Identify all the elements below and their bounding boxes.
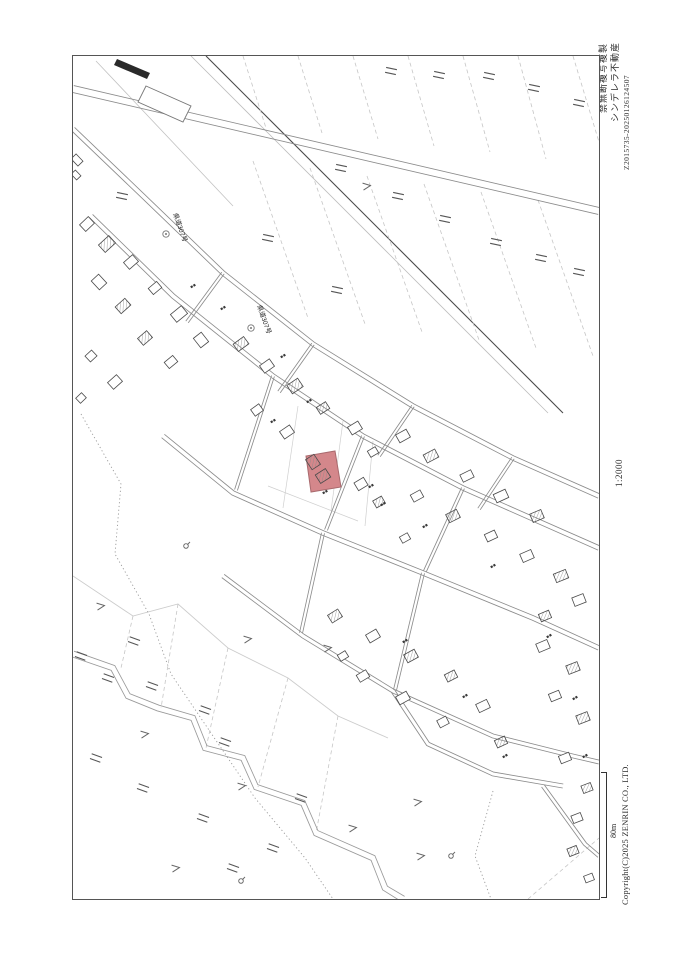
paddy-field-symbol bbox=[267, 844, 279, 852]
symbol-stroke bbox=[574, 268, 585, 270]
building bbox=[410, 490, 423, 502]
paddy-field-symbol bbox=[197, 814, 209, 822]
building bbox=[538, 610, 551, 622]
paddy-field-symbol bbox=[335, 164, 347, 171]
road-edge bbox=[397, 573, 425, 690]
label-glyph bbox=[193, 284, 196, 287]
building bbox=[115, 298, 131, 313]
map-frame: 県道307号 県道307号 bbox=[72, 55, 600, 900]
symbol-stroke bbox=[433, 76, 444, 78]
building bbox=[80, 217, 95, 232]
symbol-stroke bbox=[148, 682, 158, 686]
building bbox=[576, 712, 590, 725]
building-footprint bbox=[148, 281, 162, 294]
road-edge bbox=[222, 578, 599, 764]
paddy-field-symbol bbox=[262, 234, 274, 241]
symbol-stroke bbox=[484, 72, 495, 74]
building-footprint bbox=[493, 489, 509, 503]
bus-stop-icon bbox=[248, 325, 254, 331]
symbol-stroke bbox=[392, 197, 403, 199]
building bbox=[366, 629, 381, 643]
building-footprint bbox=[98, 236, 115, 253]
symbol-stroke bbox=[535, 259, 546, 261]
building bbox=[584, 873, 595, 883]
paddy-field-symbol bbox=[75, 652, 87, 660]
paddy-field-symbol bbox=[227, 864, 239, 872]
building-footprint bbox=[85, 350, 97, 362]
building bbox=[399, 533, 410, 543]
building-footprint bbox=[193, 332, 208, 348]
symbol-stroke bbox=[197, 818, 207, 822]
field-symbol bbox=[414, 798, 422, 806]
paddy-field-symbol bbox=[90, 754, 102, 762]
field-symbol bbox=[238, 782, 246, 790]
parcel-line bbox=[283, 406, 298, 508]
zenrin-map-print-page: { "margin_labels": { "copy_prohibition":… bbox=[0, 0, 678, 960]
name-label-mark bbox=[422, 524, 428, 529]
parcel-dashed-line bbox=[408, 56, 434, 146]
building-footprint bbox=[536, 640, 551, 653]
building bbox=[148, 281, 162, 294]
road-edge bbox=[394, 573, 422, 690]
label-glyph bbox=[493, 564, 496, 567]
building bbox=[446, 509, 461, 522]
parcel-dashed-line bbox=[253, 161, 308, 318]
name-label-mark bbox=[546, 634, 552, 639]
name-label-mark bbox=[190, 284, 196, 289]
parcel-dashed-line bbox=[310, 168, 365, 324]
symbol-stroke bbox=[77, 652, 87, 656]
building-footprint bbox=[566, 662, 580, 675]
label-glyph bbox=[325, 490, 328, 493]
parcel-line bbox=[206, 56, 563, 413]
building bbox=[108, 375, 123, 390]
building-footprint bbox=[494, 736, 507, 748]
label-glyph bbox=[575, 696, 578, 699]
building bbox=[396, 691, 411, 705]
symbol-stroke bbox=[130, 637, 140, 641]
symbol-stroke bbox=[574, 99, 585, 101]
map-scale-label: 1:2000 bbox=[615, 459, 624, 487]
name-label-mark bbox=[270, 419, 276, 424]
building-outline bbox=[138, 86, 191, 122]
map-canvas: 県道307号 県道307号 bbox=[73, 56, 599, 899]
field-symbol bbox=[349, 824, 357, 832]
road-edge bbox=[426, 489, 464, 572]
building-footprint bbox=[476, 699, 491, 712]
building bbox=[356, 670, 370, 683]
parcel-dashed-line bbox=[243, 56, 266, 128]
label-glyph bbox=[582, 755, 585, 758]
name-label-mark bbox=[280, 354, 286, 359]
parcel-dashed-line bbox=[481, 192, 536, 348]
building bbox=[73, 154, 83, 166]
label-glyph bbox=[572, 697, 575, 700]
road-edge bbox=[542, 787, 598, 857]
road-edge bbox=[73, 92, 598, 214]
symbol-stroke bbox=[90, 758, 100, 762]
symbol-stroke bbox=[440, 215, 451, 217]
symbol-stroke bbox=[528, 89, 539, 91]
building-footprint bbox=[399, 533, 410, 543]
building bbox=[494, 736, 507, 748]
orchard-symbol bbox=[184, 542, 190, 548]
parcel-dashed-line bbox=[316, 716, 338, 833]
symbol-stroke bbox=[439, 220, 450, 222]
paddy-field-symbol bbox=[331, 286, 343, 293]
building bbox=[260, 359, 275, 373]
symbol-stroke bbox=[238, 782, 246, 790]
road-name-label: 県道307号 bbox=[171, 212, 190, 244]
orchard-symbol bbox=[449, 852, 455, 858]
building bbox=[581, 782, 593, 793]
name-label-mark bbox=[490, 564, 496, 569]
paddy-field-symbol bbox=[137, 784, 149, 792]
road-edge bbox=[73, 657, 401, 899]
building-footprint bbox=[373, 496, 386, 508]
building bbox=[91, 274, 106, 290]
symbol-stroke bbox=[262, 239, 273, 241]
building bbox=[460, 470, 474, 482]
parcel-line bbox=[96, 61, 233, 206]
symbol-stroke bbox=[117, 192, 128, 194]
paddy-field-symbol bbox=[385, 67, 397, 74]
symbol-stroke bbox=[219, 742, 229, 746]
road-edge bbox=[424, 487, 462, 570]
building-footprint bbox=[80, 217, 95, 232]
paddy-field-symbol bbox=[573, 99, 585, 106]
copyright-label: Copyright(C)2025 ZENRIN CO., LTD. bbox=[621, 764, 630, 905]
building-footprint bbox=[280, 425, 295, 439]
building-footprint bbox=[396, 691, 411, 705]
field-symbol bbox=[417, 852, 425, 860]
label-glyph bbox=[462, 695, 465, 698]
parcel-dashed-line bbox=[367, 176, 422, 332]
symbol-stroke bbox=[201, 706, 211, 710]
road-edge bbox=[93, 214, 599, 546]
building bbox=[558, 752, 571, 764]
symbol-stroke bbox=[434, 71, 445, 73]
symbol-stroke bbox=[573, 104, 584, 106]
symbol-stroke bbox=[227, 868, 237, 872]
symbol-stroke bbox=[229, 864, 239, 868]
label-glyph bbox=[585, 754, 588, 757]
building-footprint bbox=[260, 359, 275, 373]
field-symbol bbox=[97, 602, 105, 610]
road-edge bbox=[188, 274, 224, 323]
scale-bar-length-label: 80m bbox=[610, 824, 618, 838]
name-label-mark bbox=[220, 306, 226, 311]
label-glyph bbox=[270, 420, 273, 423]
road-edge bbox=[237, 377, 274, 491]
symbol-stroke bbox=[453, 852, 456, 855]
building-footprint bbox=[423, 449, 439, 463]
label-glyph bbox=[422, 525, 425, 528]
building bbox=[536, 640, 551, 653]
building bbox=[367, 447, 378, 458]
field-symbol bbox=[141, 730, 149, 738]
road-edge bbox=[89, 218, 598, 550]
paddy-field-symbol bbox=[116, 192, 128, 199]
parcel-dashed-line bbox=[518, 56, 546, 159]
road-edge bbox=[303, 533, 325, 633]
symbol-stroke bbox=[188, 542, 191, 545]
building bbox=[493, 489, 509, 503]
parcel-dashed-line bbox=[528, 838, 599, 899]
print-code-label: Z2015735-20250126124507 bbox=[623, 75, 631, 170]
building-footprint bbox=[484, 530, 497, 542]
roads bbox=[73, 86, 599, 899]
building bbox=[85, 350, 97, 362]
building bbox=[138, 331, 153, 346]
building bbox=[337, 651, 348, 662]
parcel-dashed-line bbox=[258, 678, 288, 787]
parcel-dashed-line bbox=[161, 604, 178, 708]
symbol-stroke bbox=[336, 164, 347, 166]
building-footprint bbox=[444, 670, 457, 682]
symbol-stroke bbox=[491, 238, 502, 240]
building bbox=[571, 812, 583, 823]
paddy-field-symbol bbox=[128, 637, 140, 645]
road-edge bbox=[235, 376, 272, 490]
building-footprint bbox=[567, 845, 579, 856]
area-dotted-boundary bbox=[475, 791, 493, 899]
symbol-stroke bbox=[483, 77, 494, 79]
copy-prohibition-label: 禁無断複写複製 bbox=[599, 43, 608, 113]
symbol-stroke bbox=[349, 824, 357, 832]
label-glyph bbox=[322, 491, 325, 494]
road-edge bbox=[74, 651, 405, 896]
bus-stop-icon bbox=[163, 231, 169, 237]
symbol-stroke bbox=[141, 730, 149, 738]
building-footprint bbox=[581, 782, 593, 793]
building bbox=[373, 496, 386, 508]
scale-bar bbox=[601, 772, 607, 898]
building-footprint bbox=[348, 421, 363, 435]
parcel-dashed-line bbox=[573, 56, 599, 142]
building-footprint bbox=[410, 490, 423, 502]
long-building bbox=[114, 59, 150, 79]
paddy-field-symbol bbox=[219, 738, 231, 746]
road-edge bbox=[186, 272, 222, 321]
buildings bbox=[73, 154, 594, 883]
symbol-stroke bbox=[139, 784, 149, 788]
building bbox=[280, 425, 295, 439]
orchard-symbol bbox=[239, 877, 245, 883]
paddy-field-symbol bbox=[535, 254, 547, 261]
building-footprint bbox=[138, 331, 153, 346]
symbol-stroke bbox=[244, 635, 252, 643]
building-footprint bbox=[108, 375, 123, 390]
road-edge bbox=[164, 434, 599, 646]
symbol-stroke bbox=[386, 67, 397, 69]
label-glyph bbox=[505, 754, 508, 757]
building bbox=[423, 449, 439, 463]
building-footprint bbox=[328, 609, 343, 623]
paddy-field-symbol bbox=[146, 682, 158, 690]
road-edge bbox=[300, 533, 322, 633]
label-glyph bbox=[546, 635, 549, 638]
road-edge bbox=[224, 574, 599, 760]
symbol-stroke bbox=[116, 197, 127, 199]
label-glyph bbox=[190, 285, 193, 288]
company-name-label: シンデレラ不動産 bbox=[611, 42, 620, 122]
paddy-field-symbol bbox=[573, 268, 585, 275]
building bbox=[76, 393, 87, 404]
building-footprint bbox=[73, 154, 83, 166]
building bbox=[566, 662, 580, 675]
symbol-stroke bbox=[172, 864, 180, 872]
building bbox=[73, 170, 81, 180]
building-footprint bbox=[520, 549, 535, 562]
field-symbol bbox=[244, 635, 252, 643]
paddy-field-symbol bbox=[433, 71, 445, 78]
building-footprint bbox=[354, 477, 368, 490]
symbol-stroke bbox=[92, 754, 102, 758]
symbol-stroke bbox=[297, 794, 307, 798]
building bbox=[520, 549, 535, 562]
symbol-stroke bbox=[97, 602, 105, 610]
building-footprint bbox=[576, 712, 590, 725]
symbol-stroke bbox=[243, 877, 246, 880]
building-footprint bbox=[548, 690, 561, 702]
symbol-stroke bbox=[128, 641, 138, 645]
paddy-field-symbol bbox=[199, 706, 211, 714]
label-glyph bbox=[465, 694, 468, 697]
symbol-stroke bbox=[104, 674, 114, 678]
symbol-stroke bbox=[536, 254, 547, 256]
symbol-stroke bbox=[199, 710, 209, 714]
symbol-stroke bbox=[267, 848, 277, 852]
building bbox=[444, 670, 457, 682]
building-footprint bbox=[584, 873, 595, 883]
label-glyph bbox=[490, 565, 493, 568]
label-glyph bbox=[223, 306, 226, 309]
symbol-stroke bbox=[102, 678, 112, 682]
symbol-stroke bbox=[331, 291, 342, 293]
building bbox=[164, 355, 178, 368]
label-glyph bbox=[549, 634, 552, 637]
label-glyph bbox=[502, 755, 505, 758]
symbol-stroke bbox=[490, 243, 501, 245]
label-glyph bbox=[280, 355, 283, 358]
symbol-stroke bbox=[332, 286, 343, 288]
building bbox=[548, 690, 561, 702]
label-glyph bbox=[371, 484, 374, 487]
building-footprint bbox=[367, 447, 378, 458]
parcel-dashed-line bbox=[298, 56, 322, 133]
building bbox=[572, 594, 586, 607]
name-label-mark bbox=[572, 696, 578, 701]
paddy-field-symbol bbox=[528, 84, 540, 91]
building-footprint bbox=[446, 509, 461, 522]
paddy-field-symbol bbox=[483, 72, 495, 79]
building-footprint bbox=[91, 274, 106, 290]
symbol-stroke bbox=[199, 814, 209, 818]
building-footprint bbox=[337, 651, 348, 662]
symbol-stroke bbox=[221, 738, 231, 742]
symbol-stroke bbox=[529, 84, 540, 86]
name-label-mark bbox=[462, 694, 468, 699]
parcel-dashed-line bbox=[121, 616, 133, 668]
building-footprint bbox=[76, 393, 87, 404]
paddy-field-symbol bbox=[392, 192, 404, 199]
road-edge bbox=[478, 457, 512, 508]
road-edge bbox=[75, 127, 599, 494]
building-footprint bbox=[553, 569, 568, 582]
building bbox=[553, 569, 568, 582]
road-edge bbox=[380, 407, 414, 457]
building-footprint bbox=[538, 610, 551, 622]
building bbox=[567, 845, 579, 856]
building-footprint bbox=[356, 670, 370, 683]
building bbox=[484, 530, 497, 542]
symbol-stroke bbox=[269, 844, 279, 848]
paddy-field-symbol bbox=[490, 238, 502, 245]
symbol-stroke bbox=[393, 192, 404, 194]
road-edge bbox=[544, 785, 599, 855]
building-footprint bbox=[558, 752, 571, 764]
symbol-stroke bbox=[414, 798, 422, 806]
paddy-field-symbol bbox=[102, 674, 114, 682]
symbol-stroke bbox=[417, 852, 425, 860]
label-glyph bbox=[425, 524, 428, 527]
symbol-stroke bbox=[385, 72, 396, 74]
building-footprint bbox=[164, 355, 178, 368]
symbol-stroke bbox=[335, 169, 346, 171]
parcel-dashed-line bbox=[538, 200, 593, 356]
name-label-mark bbox=[502, 754, 508, 759]
building-footprint bbox=[572, 594, 586, 607]
building-footprint bbox=[73, 170, 81, 180]
symbol-stroke bbox=[263, 234, 274, 236]
symbol-stroke bbox=[146, 686, 156, 690]
field-symbol bbox=[172, 864, 180, 872]
building bbox=[193, 332, 208, 348]
symbol-stroke bbox=[573, 273, 584, 275]
building-footprint bbox=[460, 470, 474, 482]
label-glyph bbox=[273, 419, 276, 422]
paddy-field-symbol bbox=[439, 215, 451, 222]
symbol-stroke bbox=[137, 788, 147, 792]
building bbox=[354, 477, 368, 490]
building bbox=[476, 699, 491, 712]
parcel-dashed-line bbox=[206, 648, 228, 748]
building bbox=[348, 421, 363, 435]
building-footprint bbox=[366, 629, 381, 643]
parcel-dashed-line bbox=[353, 56, 378, 139]
building bbox=[98, 236, 115, 253]
area-dotted-boundary bbox=[81, 414, 333, 899]
building-footprint bbox=[115, 298, 131, 313]
parcel-dashed-line bbox=[463, 56, 490, 152]
label-glyph bbox=[220, 307, 223, 310]
building-footprint bbox=[571, 812, 583, 823]
building bbox=[328, 609, 343, 623]
label-glyph bbox=[283, 354, 286, 357]
